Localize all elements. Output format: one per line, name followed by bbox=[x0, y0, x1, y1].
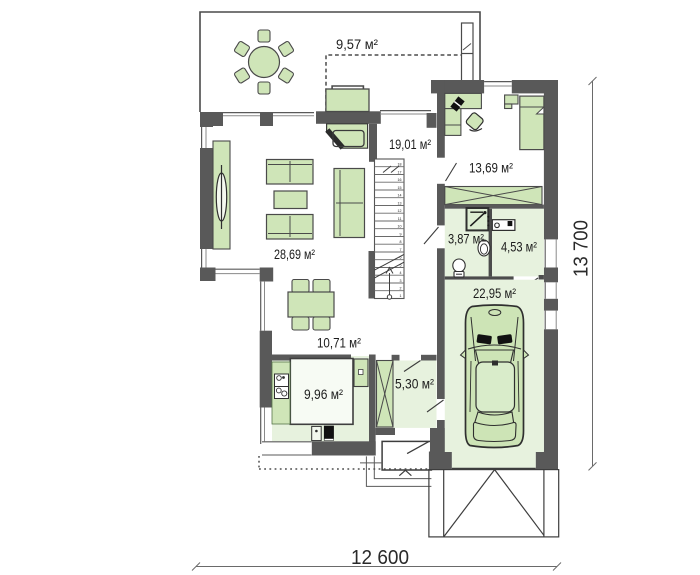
svg-text:4: 4 bbox=[400, 271, 402, 275]
svg-text:5,30 м²: 5,30 м² bbox=[395, 376, 434, 392]
svg-text:3: 3 bbox=[400, 279, 402, 283]
svg-text:13: 13 bbox=[398, 201, 402, 205]
svg-text:8: 8 bbox=[400, 240, 402, 244]
svg-text:18: 18 bbox=[398, 163, 402, 167]
svg-text:28,69 м²: 28,69 м² bbox=[274, 246, 315, 262]
svg-text:7: 7 bbox=[400, 248, 402, 252]
svg-text:9,96 м²: 9,96 м² bbox=[304, 386, 343, 402]
svg-text:22,95 м²: 22,95 м² bbox=[473, 285, 516, 301]
svg-text:13,69 м²: 13,69 м² bbox=[469, 160, 513, 176]
svg-text:14: 14 bbox=[398, 194, 402, 198]
svg-text:16: 16 bbox=[398, 178, 402, 182]
svg-text:17: 17 bbox=[398, 170, 402, 174]
svg-text:3,87 м²: 3,87 м² bbox=[448, 231, 484, 247]
svg-text:4,53 м²: 4,53 м² bbox=[501, 239, 537, 255]
svg-text:13 700: 13 700 bbox=[571, 220, 593, 277]
svg-text:1: 1 bbox=[400, 294, 402, 298]
svg-text:11: 11 bbox=[398, 217, 402, 221]
svg-text:19,01 м²: 19,01 м² bbox=[389, 136, 431, 152]
svg-text:9,57 м²: 9,57 м² bbox=[336, 36, 378, 52]
svg-text:9: 9 bbox=[400, 232, 402, 236]
svg-text:10,71 м²: 10,71 м² bbox=[317, 335, 361, 351]
svg-text:10: 10 bbox=[398, 225, 402, 229]
svg-text:12: 12 bbox=[398, 209, 402, 213]
svg-text:12 600: 12 600 bbox=[351, 547, 409, 569]
svg-text:15: 15 bbox=[398, 186, 402, 190]
svg-text:2: 2 bbox=[400, 287, 402, 291]
